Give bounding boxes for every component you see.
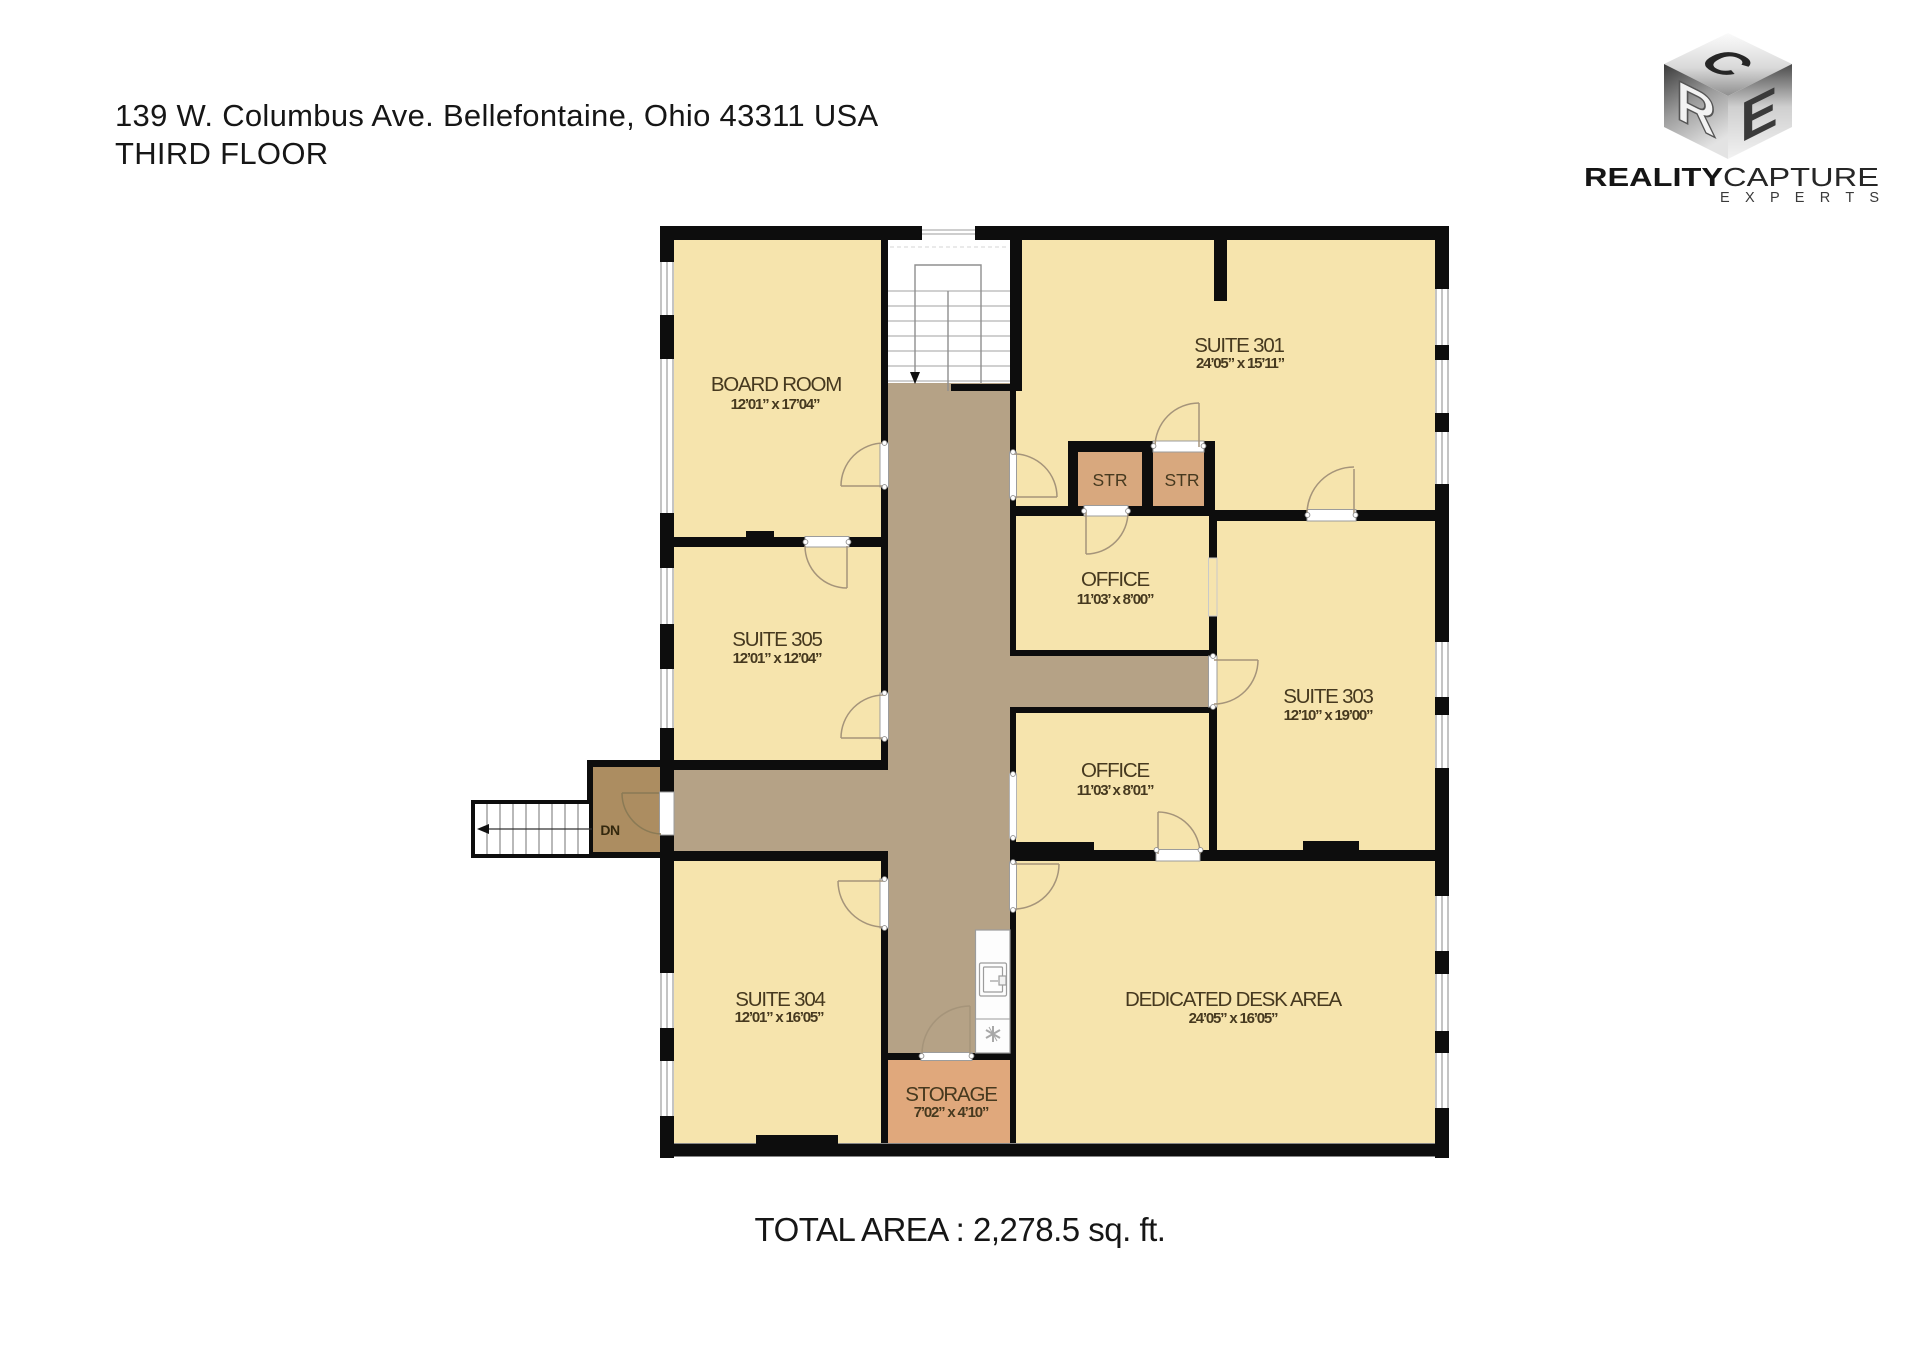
svg-text:CAPTURE: CAPTURE: [1723, 162, 1879, 192]
svg-text:SUITE 305: SUITE 305: [732, 628, 822, 651]
svg-text:12’01” x 12’04”: 12’01” x 12’04”: [733, 650, 822, 667]
svg-text:11’03’ x 8’00”: 11’03’ x 8’00”: [1077, 591, 1154, 608]
svg-text:12’01” x 17’04”: 12’01” x 17’04”: [731, 396, 820, 413]
svg-text:STR: STR: [1165, 470, 1200, 490]
svg-text:12’01” x 16’05”: 12’01” x 16’05”: [735, 1009, 824, 1026]
svg-text:STORAGE: STORAGE: [905, 1083, 997, 1106]
svg-text:SUITE 301: SUITE 301: [1194, 334, 1284, 357]
svg-text:24’05” x 15’11”: 24’05” x 15’11”: [1196, 355, 1285, 372]
svg-text:11’03’ x 8’01”: 11’03’ x 8’01”: [1077, 782, 1154, 799]
svg-text:STR: STR: [1093, 470, 1128, 490]
svg-text:SUITE 304: SUITE 304: [735, 988, 825, 1011]
svg-text:DN: DN: [600, 822, 620, 838]
svg-text:REALITY: REALITY: [1584, 162, 1723, 192]
svg-text:OFFICE: OFFICE: [1081, 568, 1149, 591]
svg-text:E X P E R T S: E X P E R T S: [1720, 190, 1879, 206]
svg-text:SUITE 303: SUITE 303: [1283, 685, 1373, 708]
svg-text:12’10” x 19’00”: 12’10” x 19’00”: [1284, 707, 1373, 724]
svg-text:OFFICE: OFFICE: [1081, 759, 1149, 782]
svg-text:24’05” x 16’05”: 24’05” x 16’05”: [1189, 1010, 1278, 1027]
svg-text:7’02” x 4’10”: 7’02” x 4’10”: [914, 1104, 989, 1121]
svg-text:DEDICATED DESK AREA: DEDICATED DESK AREA: [1125, 988, 1343, 1011]
svg-text:BOARD ROOM: BOARD ROOM: [711, 373, 841, 396]
